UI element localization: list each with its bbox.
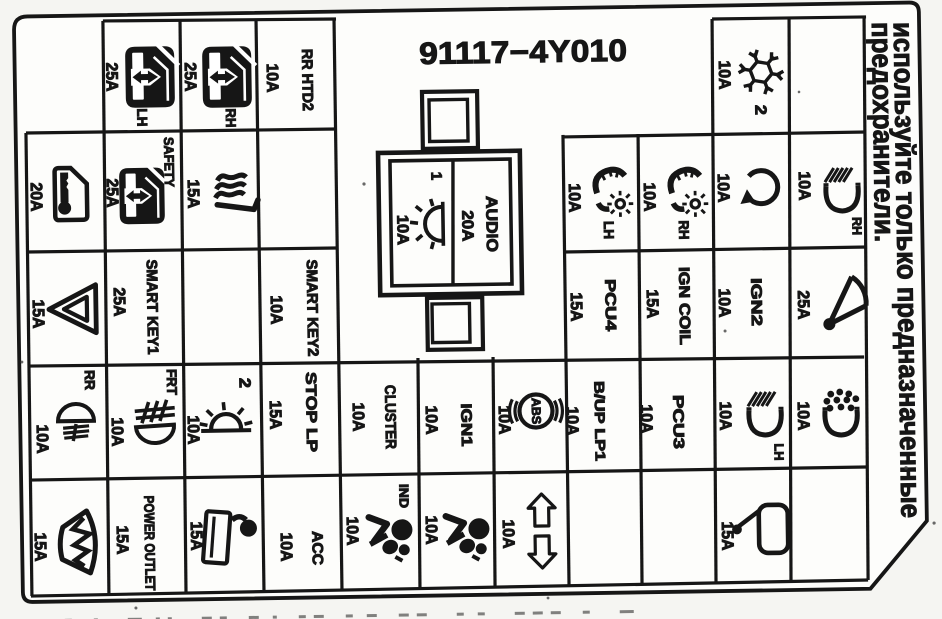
svg-text:10A: 10A [267,295,285,324]
svg-text:ABS: ABS [529,398,543,425]
svg-text:SMART KEY2: SMART KEY2 [303,259,322,356]
svg-text:1: 1 [427,172,444,181]
svg-text:10A: 10A [263,63,281,92]
svg-text:FRT: FRT [164,369,180,396]
svg-text:CLUSTER: CLUSTER [381,385,399,449]
svg-text:10A: 10A [715,288,733,317]
svg-text:20A: 20A [27,182,45,211]
svg-text:ACC: ACC [308,531,326,565]
svg-text:IGN COIL: IGN COIL [675,267,693,345]
svg-text:LH: LH [601,221,617,239]
svg-text:10A: 10A [795,171,813,200]
svg-text:10A: 10A [499,519,517,548]
svg-text:PCU4: PCU4 [601,279,619,332]
svg-text:AUDIO: AUDIO [482,196,500,252]
svg-text:10A: 10A [637,404,655,433]
svg-text:2: 2 [235,378,252,388]
svg-text:10A: 10A [715,60,733,89]
svg-text:15A: 15A [113,525,131,554]
svg-text:10A: 10A [349,402,367,431]
svg-text:10A: 10A [343,516,361,545]
svg-text:STOP LP: STOP LP [302,372,320,452]
svg-text:10A: 10A [33,424,51,453]
svg-text:10A: 10A [716,401,734,430]
svg-text:10A: 10A [640,182,658,211]
svg-text:RH: RH [676,220,692,239]
svg-text:10A: 10A [422,515,440,544]
svg-text:10A: 10A [565,183,583,212]
svg-text:15A: 15A [31,532,49,561]
svg-text:15A: 15A [266,400,284,429]
svg-text:10A: 10A [393,215,410,246]
svg-text:25A: 25A [181,62,199,91]
svg-text:B/UP LP1: B/UP LP1 [591,381,608,462]
svg-text:RH: RH [223,108,239,127]
svg-text:10A: 10A [714,173,732,202]
svg-text:10A: 10A [794,401,812,430]
svg-text:LH: LH [771,443,786,460]
svg-text:RR: RR [82,370,98,390]
svg-text:SMART KEY1: SMART KEY1 [143,259,161,354]
svg-text:PCU3: PCU3 [669,395,687,449]
svg-text:2: 2 [751,105,768,115]
svg-text:10A: 10A [422,405,440,434]
svg-text:25A: 25A [103,178,121,207]
svg-text:LH: LH [134,108,150,126]
svg-text:IND: IND [396,484,411,508]
svg-text:20A: 20A [458,210,475,242]
svg-text:10A: 10A [108,417,126,446]
svg-text:SAFETY: SAFETY [161,137,177,187]
svg-text:15A: 15A [718,521,736,550]
svg-text:RR HTD2: RR HTD2 [298,49,316,111]
svg-text:25A: 25A [110,287,128,316]
svg-text:15A: 15A [567,292,585,321]
svg-text:15A: 15A [643,289,661,318]
svg-text:IGN1: IGN1 [457,403,475,446]
svg-text:RH: RH [849,217,864,235]
svg-text:91117−4Y010: 91117−4Y010 [419,33,628,71]
svg-text:15A: 15A [184,179,202,208]
svg-text:25A: 25A [794,290,812,319]
svg-text:15A: 15A [29,299,47,328]
svg-text:IGN2: IGN2 [747,278,765,326]
svg-text:10A: 10A [184,415,202,444]
svg-text:предохранители.: предохранители. [866,22,900,242]
svg-text:10A: 10A [277,532,295,561]
svg-text:10A: 10A [563,406,581,435]
svg-text:POWER OUTLET: POWER OUTLET [141,495,158,591]
svg-text:25A: 25A [102,62,120,91]
